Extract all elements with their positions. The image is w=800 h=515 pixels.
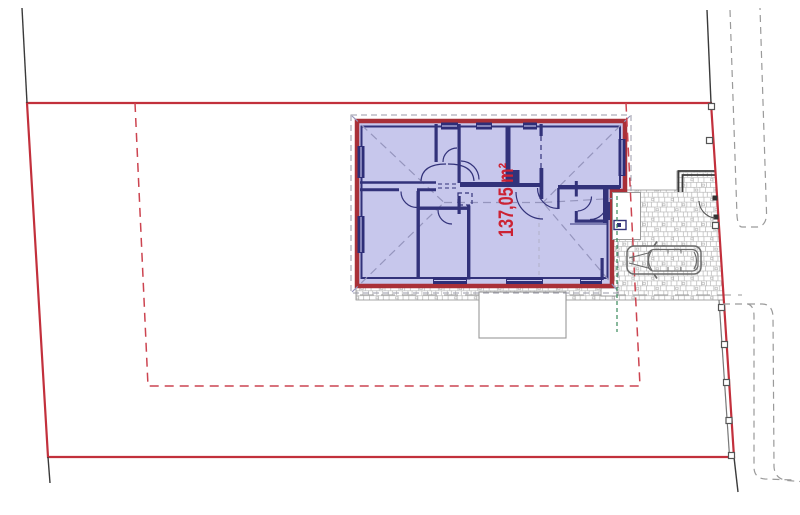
svg-text:137,05 m²: 137,05 m² [495, 163, 518, 237]
